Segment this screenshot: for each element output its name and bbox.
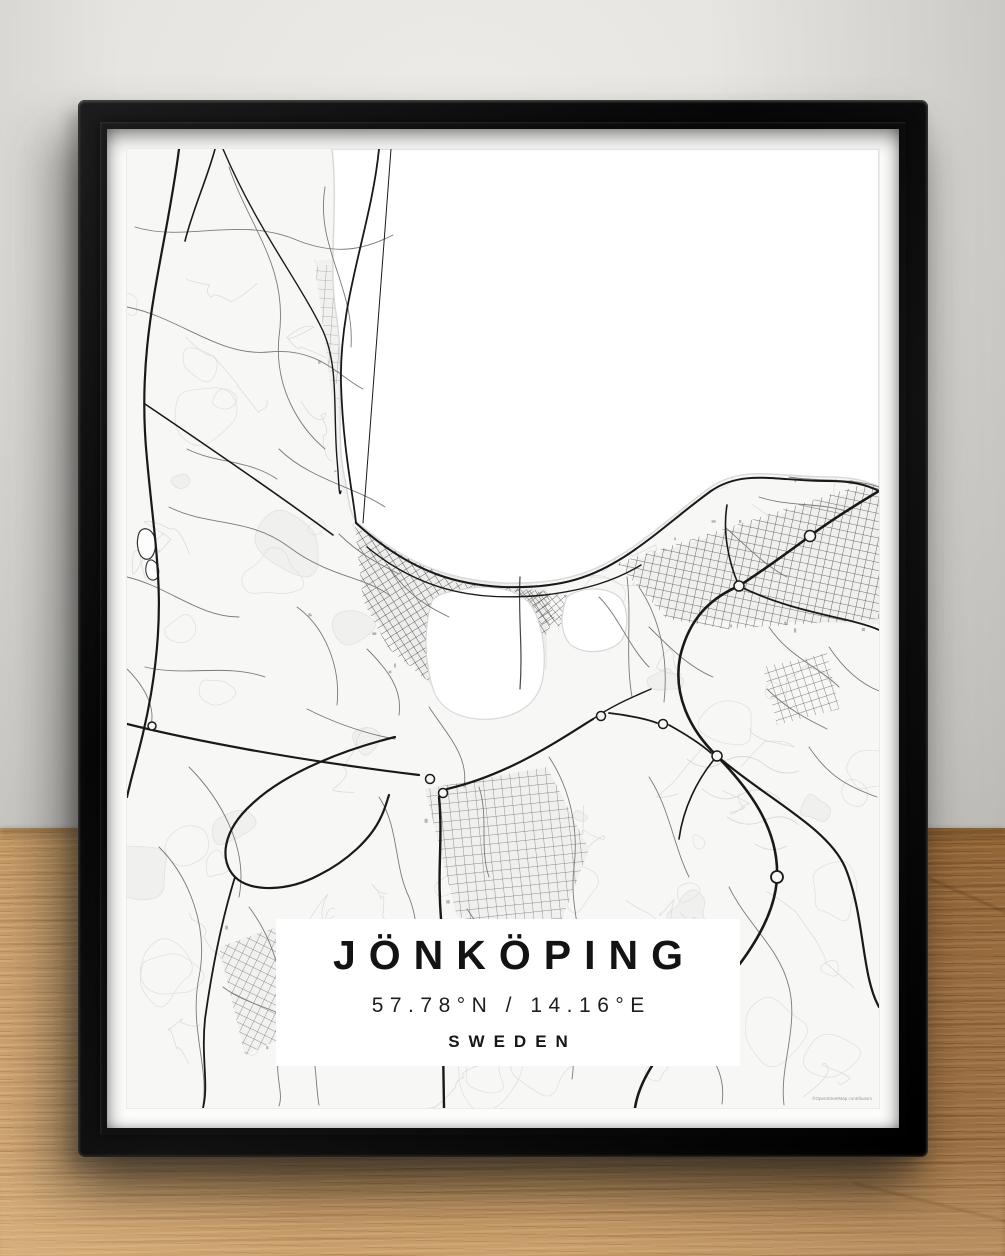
map-poster: ©OpenStreetMap contributors JÖNKÖPING 57… [127,149,879,1108]
poster-title-box: JÖNKÖPING 57.78°N / 14.16°E SWEDEN [276,919,740,1066]
lake-munksjon [426,587,544,719]
poster-country: SWEDEN [448,1033,577,1050]
map-attribution: ©OpenStreetMap contributors [812,1095,873,1101]
west-pond [137,529,155,559]
poster-coordinates: 57.78°N / 14.16°E [372,995,651,1016]
photo-scene: ©OpenStreetMap contributors JÖNKÖPING 57… [0,0,1005,1256]
poster-title: JÖNKÖPING [333,935,696,976]
picture-frame: ©OpenStreetMap contributors JÖNKÖPING 57… [78,100,928,1157]
poster-mat: ©OpenStreetMap contributors JÖNKÖPING 57… [107,129,899,1128]
foreground-blur [0,1140,1005,1256]
